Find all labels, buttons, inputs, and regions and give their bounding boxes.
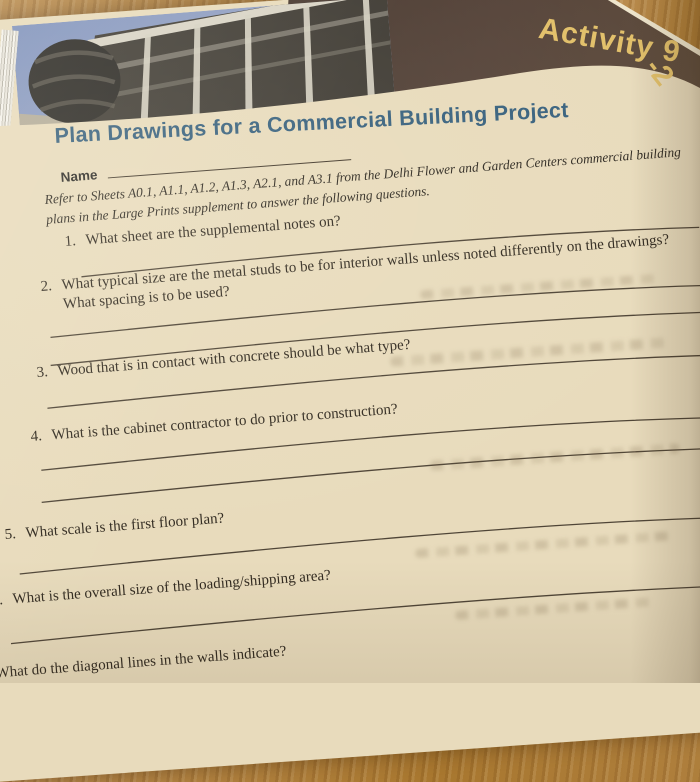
question-number: 5. bbox=[4, 525, 19, 545]
question-number: 6. bbox=[0, 591, 6, 611]
question-number: 3. bbox=[36, 363, 51, 383]
question-number: 2. bbox=[40, 277, 57, 316]
photographed-workbook-page: { "banner": { "label": "Activity 9-2", "… bbox=[0, 0, 700, 683]
question-number: 1. bbox=[64, 232, 79, 252]
name-label: Name bbox=[60, 167, 98, 185]
question-number: 4. bbox=[30, 427, 45, 447]
